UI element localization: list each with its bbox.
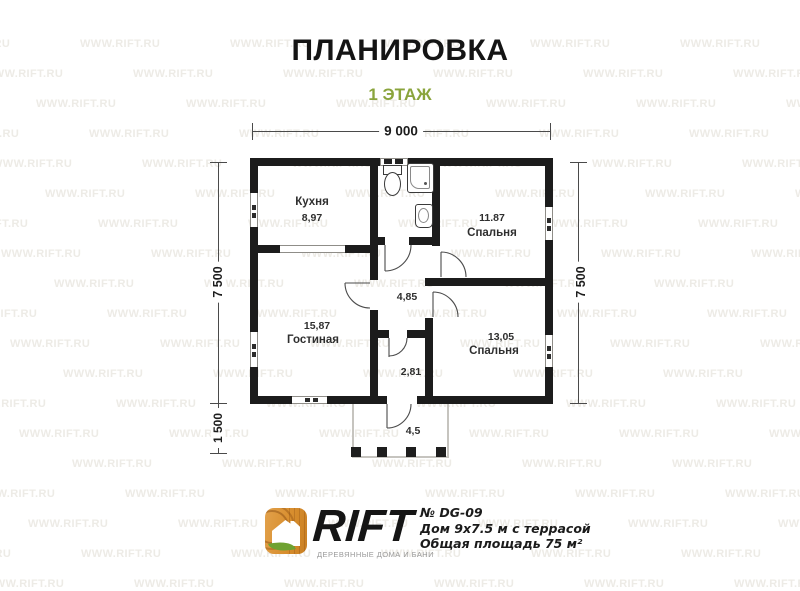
- bathroom-door: [385, 245, 411, 271]
- entrance-door: [387, 404, 411, 428]
- sink-basin-icon: [418, 208, 429, 223]
- shower-drain-icon: [424, 182, 427, 185]
- bedroom1-door: [441, 252, 466, 277]
- bedroom2-door: [433, 292, 458, 317]
- living-room-door: [345, 283, 370, 308]
- door-arcs: [0, 0, 800, 591]
- hall-corridor-door: [389, 338, 407, 357]
- floor-plan-page: WWW.RIFT.RUWWW.RIFT.RUWWW.RIFT.RUWWW.RIF…: [0, 0, 800, 591]
- shower-tray-icon: [410, 166, 430, 189]
